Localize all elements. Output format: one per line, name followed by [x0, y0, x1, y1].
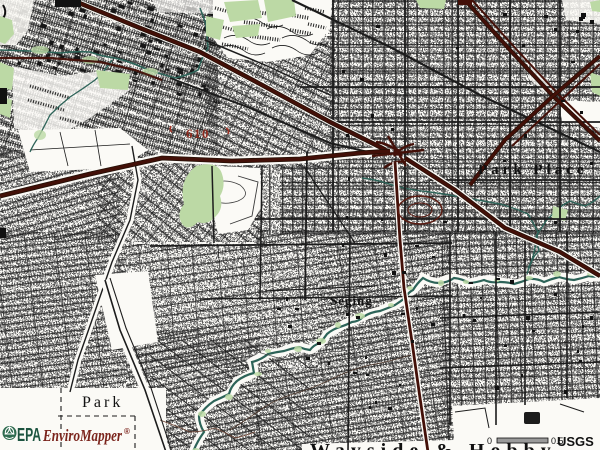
- svg-text:Park: Park: [82, 394, 123, 411]
- svg-text:0: 0: [487, 436, 492, 446]
- svg-text:USGS: USGS: [557, 434, 594, 449]
- svg-text:610: 610: [186, 126, 210, 141]
- svg-text:EPA: EPA: [17, 425, 41, 445]
- svg-text:EnviroMapper: EnviroMapper: [42, 426, 122, 445]
- svg-text:Seging: Seging: [330, 293, 373, 308]
- svg-text:®: ®: [124, 427, 130, 436]
- svg-text:Park Place: Park Place: [478, 162, 588, 178]
